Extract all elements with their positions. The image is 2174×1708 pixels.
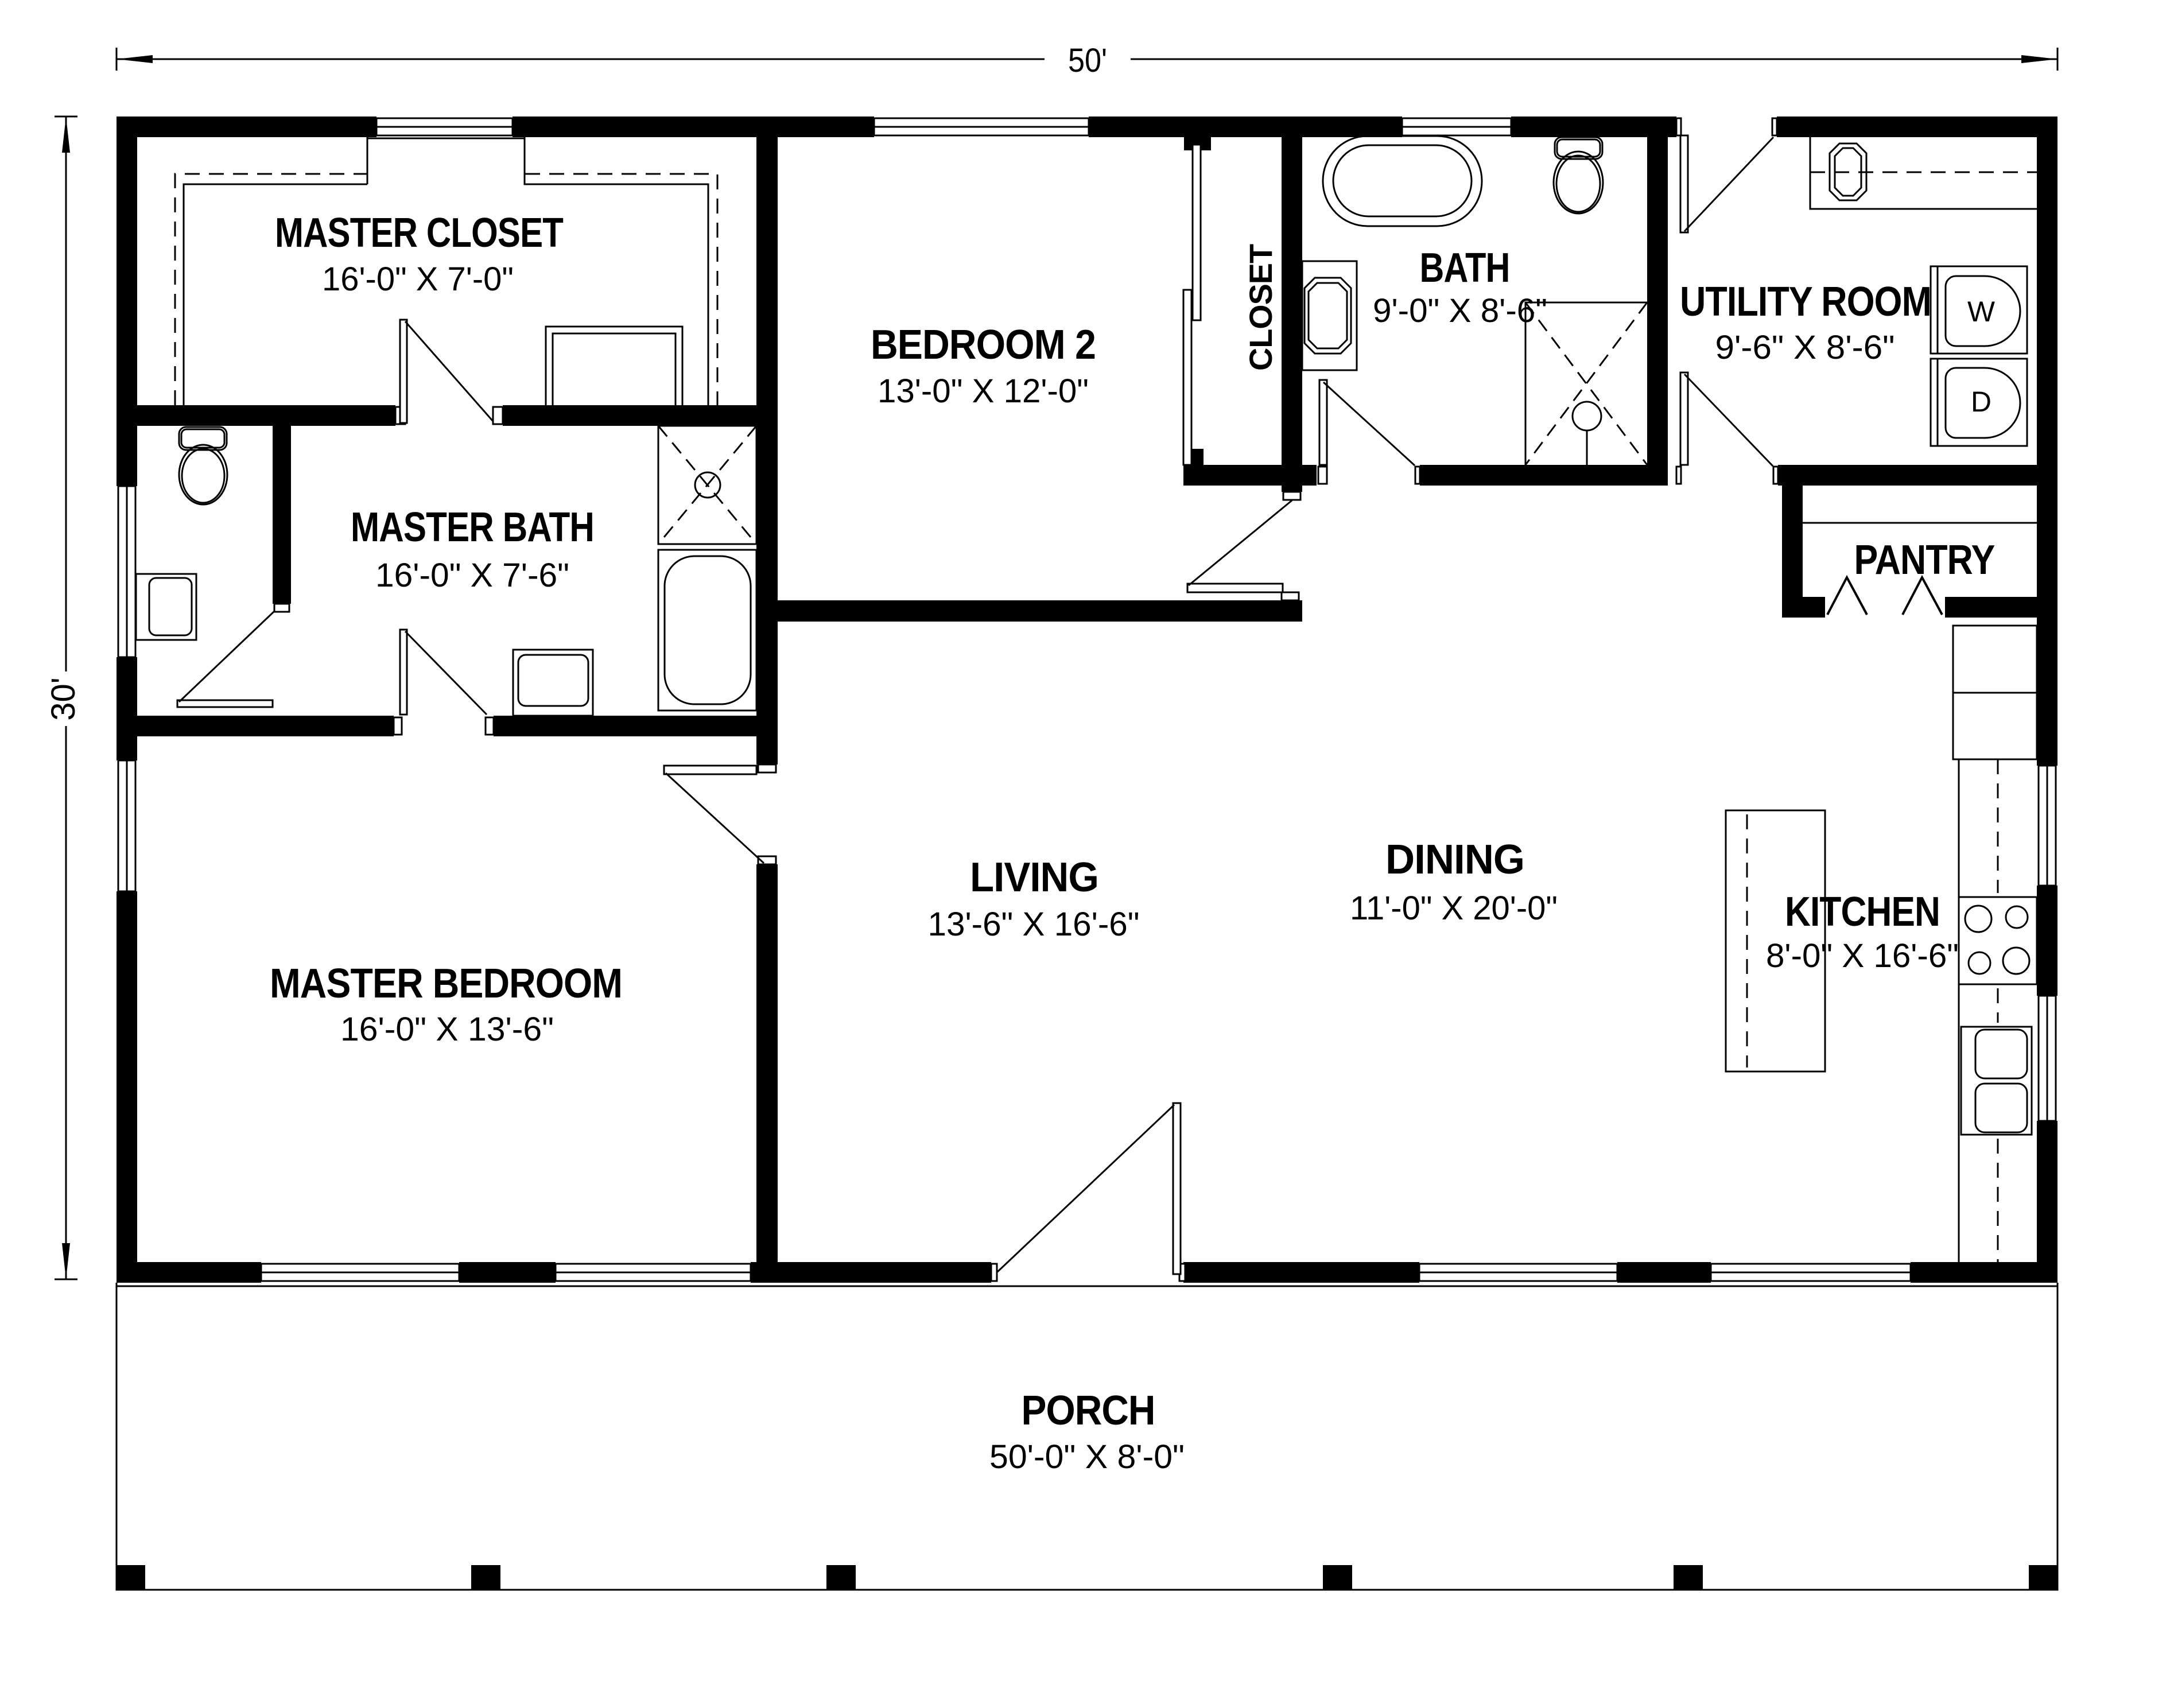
svg-text:8'-0" X 16'-6": 8'-0" X 16'-6" <box>1766 937 1959 975</box>
svg-text:13'-0" X 12'-0": 13'-0" X 12'-0" <box>878 372 1089 410</box>
svg-text:DINING: DINING <box>1385 837 1524 883</box>
svg-text:16'-0" X 13'-6": 16'-0" X 13'-6" <box>340 1011 554 1048</box>
svg-text:CLOSET: CLOSET <box>1243 244 1279 371</box>
svg-text:50'-0" X 8'-0": 50'-0" X 8'-0" <box>989 1438 1185 1476</box>
svg-text:D: D <box>1971 386 1991 418</box>
svg-text:LIVING: LIVING <box>970 855 1098 900</box>
svg-text:11'-0" X 20'-0": 11'-0" X 20'-0" <box>1350 890 1558 927</box>
svg-text:30': 30' <box>45 677 82 721</box>
svg-text:16'-0" X 7'-0": 16'-0" X 7'-0" <box>322 261 514 298</box>
svg-text:13'-6" X 16'-6": 13'-6" X 16'-6" <box>928 906 1140 943</box>
svg-text:W: W <box>1967 296 1996 328</box>
svg-text:MASTER BATH: MASTER BATH <box>351 504 594 550</box>
svg-text:BEDROOM 2: BEDROOM 2 <box>871 322 1096 368</box>
svg-text:50': 50' <box>1068 42 1107 79</box>
svg-text:BATH: BATH <box>1420 245 1510 291</box>
svg-text:UTILITY ROOM: UTILITY ROOM <box>1680 279 1931 325</box>
svg-text:PANTRY: PANTRY <box>1854 537 1995 583</box>
svg-text:9'-6" X 8'-6": 9'-6" X 8'-6" <box>1715 329 1895 366</box>
svg-text:MASTER CLOSET: MASTER CLOSET <box>275 210 564 256</box>
svg-text:KITCHEN: KITCHEN <box>1785 889 1940 935</box>
svg-text:16'-0" X 7'-6": 16'-0" X 7'-6" <box>375 557 569 594</box>
svg-text:MASTER BEDROOM: MASTER BEDROOM <box>270 961 622 1007</box>
svg-text:PORCH: PORCH <box>1022 1388 1155 1434</box>
svg-text:9'-0" X 8'-6": 9'-0" X 8'-6" <box>1373 292 1547 329</box>
